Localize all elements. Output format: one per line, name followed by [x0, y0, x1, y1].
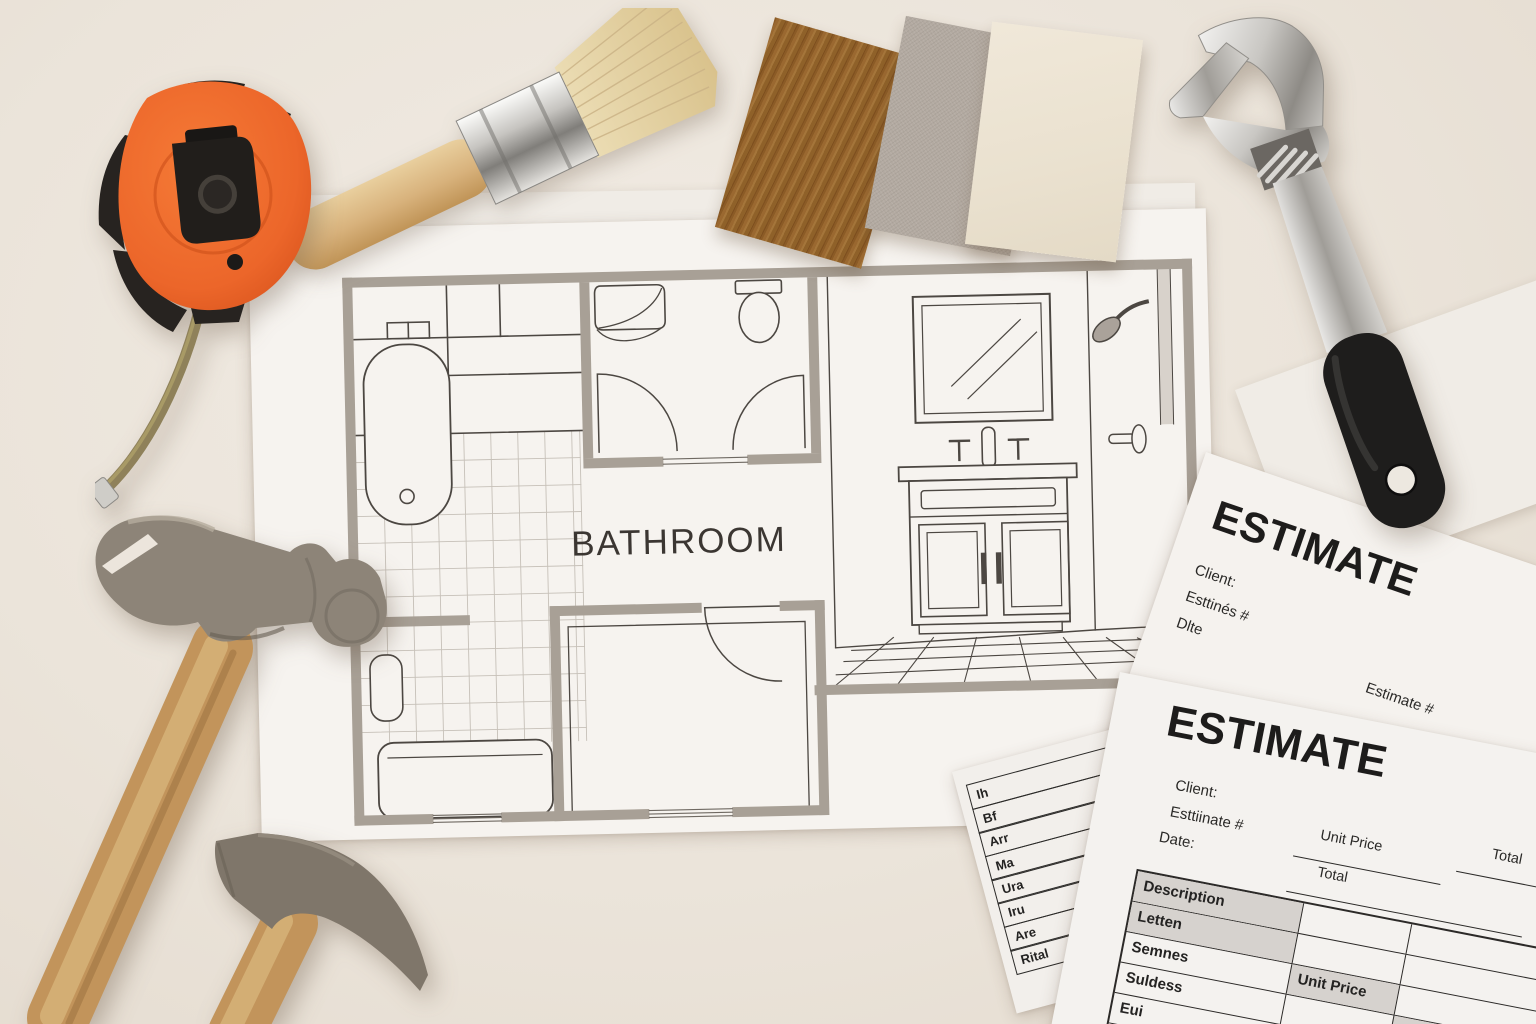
- date-label: Date:: [1158, 829, 1196, 853]
- mirror: [913, 294, 1053, 423]
- estimate-table: Description Letten Semnes Unit Price Sul…: [1095, 869, 1536, 1024]
- door-pull: [982, 553, 987, 583]
- blank-line: [1293, 855, 1440, 885]
- renovation-flatlay-photo: BATHROOM: [0, 0, 1536, 1024]
- total-label: Total: [1316, 864, 1349, 886]
- unit-price-label: Unit Price: [1319, 827, 1384, 855]
- bathroom-label: BATHROOM: [571, 520, 787, 564]
- door-pull: [997, 553, 1002, 583]
- tape-measure: [95, 40, 345, 540]
- client-label: Client:: [1192, 561, 1238, 591]
- blank-line: [1456, 871, 1536, 904]
- client-label: Client:: [1174, 777, 1219, 802]
- date-label: Dlte: [1174, 614, 1205, 639]
- paint-brush: [278, 8, 738, 308]
- hammer-head: [96, 516, 387, 647]
- corner-estimate-number-label: Estimate #: [1363, 679, 1436, 718]
- adjustable-wrench: [1115, 8, 1475, 548]
- wrench-grip: [1313, 323, 1456, 539]
- estimate-number-label: Esttiinate #: [1169, 803, 1245, 834]
- total-right-label: Total: [1491, 846, 1524, 868]
- cross-peen-hammer: [130, 795, 510, 1024]
- vanity-cabinet: [909, 477, 1070, 625]
- faucet: [982, 427, 996, 467]
- wrench-shaft: [1269, 164, 1387, 353]
- toilet-bowl: [739, 292, 780, 343]
